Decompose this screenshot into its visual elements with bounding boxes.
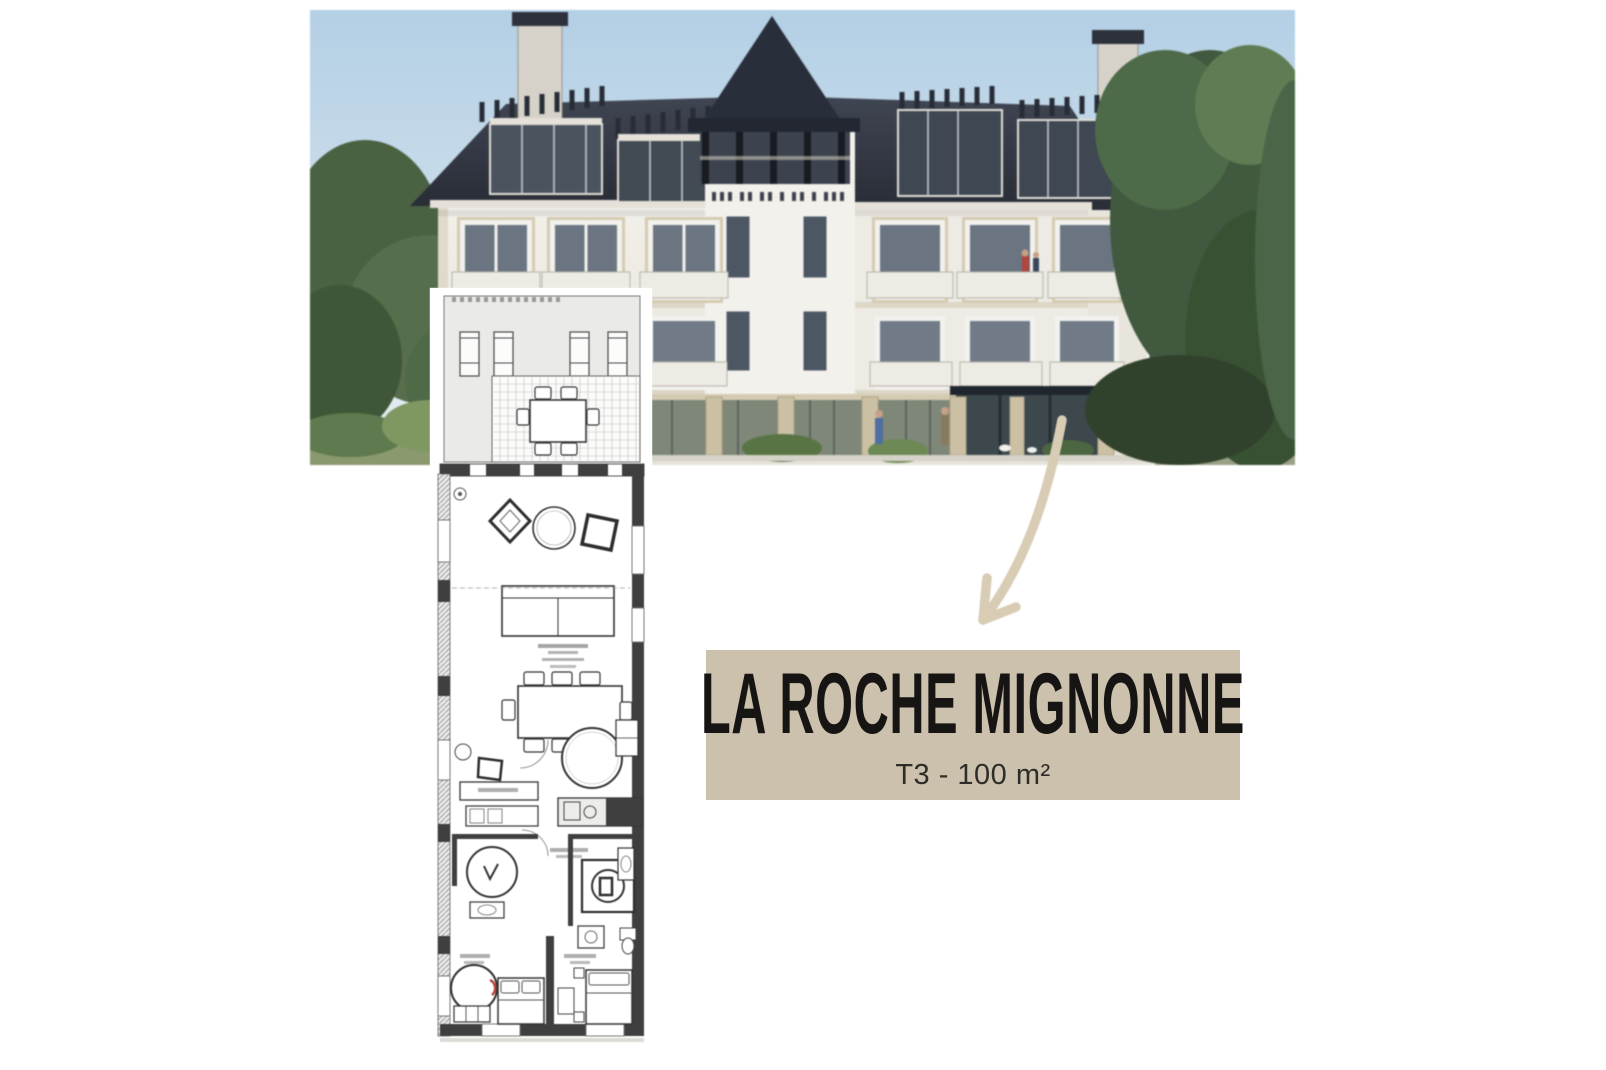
listing-banner: LA ROCHE MIGNONNE T3 - 100 m² [706, 650, 1240, 800]
apartment-spec: T3 - 100 m² [895, 759, 1050, 792]
real-estate-sheet: LA ROCHE MIGNONNE T3 - 100 m² [0, 0, 1606, 1070]
terrace [444, 296, 640, 462]
floor-plan [430, 288, 652, 1054]
curved-arrow-icon [930, 400, 1130, 660]
floor-plan-drawing [430, 288, 652, 1054]
residence-name: LA ROCHE MIGNONNE [701, 659, 1245, 746]
